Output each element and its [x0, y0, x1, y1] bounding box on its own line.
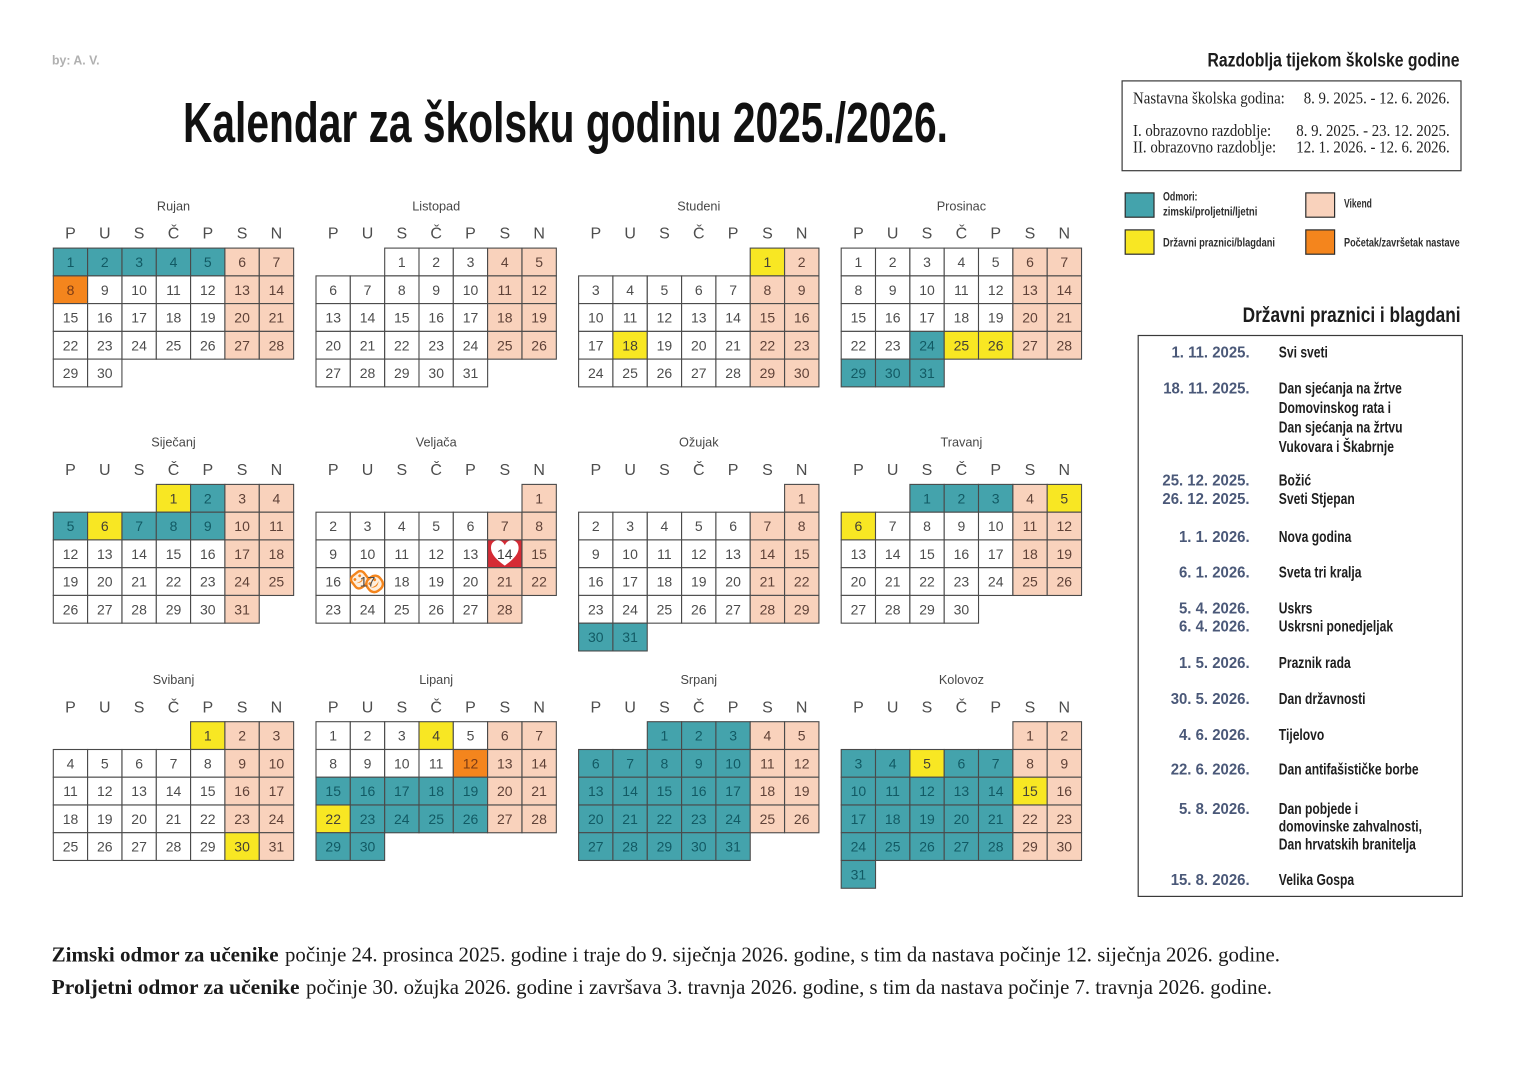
svg-text:15. 8. 2026.: 15. 8. 2026. [1171, 872, 1250, 889]
svg-text:7: 7 [535, 728, 543, 744]
svg-text:2: 2 [204, 490, 212, 506]
svg-text:29: 29 [63, 365, 79, 381]
svg-text:23: 23 [885, 337, 901, 353]
svg-text:Listopad: Listopad [412, 199, 460, 213]
svg-text:1: 1 [855, 254, 863, 270]
svg-text:24: 24 [919, 337, 935, 353]
svg-text:17: 17 [131, 310, 147, 326]
svg-text:27: 27 [954, 839, 970, 855]
svg-text:19: 19 [531, 310, 547, 326]
svg-text:15: 15 [851, 310, 867, 326]
svg-text:22: 22 [200, 811, 216, 827]
svg-text:27: 27 [234, 337, 250, 353]
svg-text:7: 7 [992, 755, 1000, 771]
svg-text:5: 5 [67, 518, 75, 534]
svg-text:4: 4 [501, 254, 509, 270]
svg-text:15: 15 [657, 783, 673, 799]
svg-text:16: 16 [954, 546, 970, 562]
svg-text:9: 9 [889, 282, 897, 298]
svg-text:17: 17 [463, 310, 479, 326]
svg-text:10: 10 [131, 282, 147, 298]
svg-text:Vukovara i Škabrnje: Vukovara i Škabrnje [1279, 437, 1394, 456]
svg-text:21: 21 [760, 574, 776, 590]
svg-text:19: 19 [200, 310, 216, 326]
svg-text:16: 16 [1057, 783, 1073, 799]
svg-text:16: 16 [885, 310, 901, 326]
svg-text:počinje 24. prosinca 2025. god: počinje 24. prosinca 2025. godine i traj… [285, 943, 1280, 967]
svg-text:5. 4. 2026.: 5. 4. 2026. [1179, 600, 1250, 617]
svg-text:13: 13 [131, 783, 147, 799]
svg-text:29: 29 [1022, 839, 1038, 855]
svg-text:26: 26 [463, 811, 479, 827]
svg-text:8: 8 [661, 755, 669, 771]
svg-text:12: 12 [97, 783, 113, 799]
svg-text:22: 22 [851, 337, 867, 353]
svg-text:5: 5 [101, 755, 109, 771]
svg-text:15: 15 [200, 783, 216, 799]
svg-text:31: 31 [234, 601, 250, 617]
svg-text:22: 22 [325, 811, 341, 827]
svg-text:25: 25 [166, 337, 182, 353]
svg-text:Domovinskog rata i: Domovinskog rata i [1279, 400, 1391, 417]
svg-text:Kolovoz: Kolovoz [939, 673, 984, 687]
svg-text:18: 18 [269, 546, 285, 562]
svg-text:23: 23 [200, 574, 216, 590]
svg-text:25: 25 [885, 839, 901, 855]
svg-text:19: 19 [919, 811, 935, 827]
svg-text:7: 7 [501, 518, 509, 534]
svg-text:30: 30 [97, 365, 113, 381]
svg-text:1: 1 [67, 254, 75, 270]
svg-text:Dan sjećanja na žrtvu: Dan sjećanja na žrtvu [1279, 419, 1403, 436]
svg-text:Razdoblja tijekom školske godi: Razdoblja tijekom školske godine [1208, 50, 1460, 71]
svg-text:18: 18 [954, 310, 970, 326]
svg-text:30: 30 [794, 365, 810, 381]
svg-text:1: 1 [329, 728, 337, 744]
svg-text:21: 21 [725, 337, 741, 353]
svg-text:Uskrs: Uskrs [1279, 600, 1313, 617]
svg-text:10: 10 [394, 755, 410, 771]
svg-text:1: 1 [398, 254, 406, 270]
svg-text:30: 30 [691, 839, 707, 855]
svg-text:22: 22 [760, 337, 776, 353]
svg-text:6. 1. 2026.: 6. 1. 2026. [1179, 565, 1250, 582]
svg-text:25: 25 [428, 811, 444, 827]
svg-text:3: 3 [273, 728, 281, 744]
svg-text:Dan pobjede i: Dan pobjede i [1279, 801, 1358, 818]
svg-text:10: 10 [622, 546, 638, 562]
svg-text:27: 27 [325, 365, 341, 381]
svg-text:Svi sveti: Svi sveti [1279, 345, 1328, 362]
svg-text:24: 24 [622, 601, 638, 617]
svg-text:7: 7 [135, 518, 143, 534]
svg-text:Dan antifašističke borbe: Dan antifašističke borbe [1279, 762, 1419, 779]
svg-text:16: 16 [428, 310, 444, 326]
svg-text:8: 8 [923, 518, 931, 534]
svg-text:7: 7 [889, 518, 897, 534]
svg-text:8: 8 [329, 755, 337, 771]
svg-text:21: 21 [166, 811, 182, 827]
svg-text:Dan državnosti: Dan državnosti [1279, 691, 1366, 708]
svg-text:24: 24 [851, 839, 867, 855]
svg-text:4: 4 [67, 755, 75, 771]
svg-text:2: 2 [364, 728, 372, 744]
svg-text:9: 9 [695, 755, 703, 771]
svg-text:30: 30 [234, 839, 250, 855]
svg-text:28: 28 [885, 601, 901, 617]
svg-text:8: 8 [1026, 755, 1034, 771]
svg-text:9: 9 [1060, 755, 1068, 771]
svg-text:22: 22 [919, 574, 935, 590]
svg-text:8: 8 [798, 518, 806, 534]
svg-text:12: 12 [463, 755, 479, 771]
svg-text:26: 26 [657, 365, 673, 381]
svg-text:17: 17 [269, 783, 285, 799]
svg-text:11: 11 [885, 783, 900, 799]
svg-text:6: 6 [855, 518, 863, 534]
svg-text:26: 26 [97, 839, 113, 855]
svg-text:11: 11 [429, 755, 444, 771]
svg-text:30: 30 [200, 601, 216, 617]
svg-text:21: 21 [131, 574, 147, 590]
svg-text:9: 9 [432, 282, 440, 298]
svg-text:18: 18 [166, 310, 182, 326]
svg-text:4: 4 [764, 728, 772, 744]
svg-text:3: 3 [729, 728, 737, 744]
svg-text:31: 31 [622, 629, 638, 645]
svg-text:1. 5. 2026.: 1. 5. 2026. [1179, 655, 1250, 672]
svg-text:20: 20 [97, 574, 113, 590]
svg-text:PUSČPSN: PUSČPSN [590, 697, 807, 716]
svg-text:29: 29 [200, 839, 216, 855]
svg-text:11: 11 [657, 546, 672, 562]
svg-text:20: 20 [725, 574, 741, 590]
svg-text:16: 16 [691, 783, 707, 799]
svg-text:13: 13 [725, 546, 741, 562]
svg-text:28: 28 [760, 601, 776, 617]
svg-text:4: 4 [1026, 490, 1034, 506]
svg-text:PUSČPSN: PUSČPSN [65, 224, 282, 243]
svg-text:24: 24 [131, 337, 147, 353]
svg-text:10: 10 [234, 518, 250, 534]
svg-text:11: 11 [395, 546, 410, 562]
svg-text:17: 17 [988, 546, 1004, 562]
svg-text:15: 15 [166, 546, 182, 562]
svg-text:14: 14 [885, 546, 901, 562]
svg-text:31: 31 [919, 365, 935, 381]
svg-text:13: 13 [851, 546, 867, 562]
svg-text:19: 19 [657, 337, 673, 353]
svg-text:20: 20 [1022, 310, 1038, 326]
svg-text:8: 8 [67, 282, 75, 298]
svg-text:7: 7 [764, 518, 772, 534]
svg-text:20: 20 [691, 337, 707, 353]
svg-text:20: 20 [851, 574, 867, 590]
svg-text:Veljača: Veljača [416, 436, 458, 450]
svg-text:4: 4 [170, 254, 178, 270]
svg-text:5: 5 [661, 282, 669, 298]
svg-text:10: 10 [463, 282, 479, 298]
svg-text:Travanj: Travanj [940, 436, 982, 450]
svg-text:14: 14 [269, 282, 285, 298]
svg-text:20: 20 [234, 310, 250, 326]
svg-text:19: 19 [1057, 546, 1073, 562]
svg-text:14: 14 [988, 783, 1004, 799]
svg-text:21: 21 [497, 574, 513, 590]
svg-text:23: 23 [954, 574, 970, 590]
svg-text:3: 3 [364, 518, 372, 534]
svg-text:30: 30 [428, 365, 444, 381]
svg-text:28: 28 [269, 337, 285, 353]
svg-text:11: 11 [954, 282, 969, 298]
svg-text:3: 3 [135, 254, 143, 270]
svg-text:2: 2 [238, 728, 246, 744]
svg-text:5. 8. 2026.: 5. 8. 2026. [1179, 801, 1250, 818]
svg-text:17: 17 [234, 546, 250, 562]
svg-text:20: 20 [588, 811, 604, 827]
svg-text:14: 14 [760, 546, 776, 562]
svg-text:15: 15 [531, 546, 547, 562]
svg-text:28: 28 [531, 811, 547, 827]
svg-text:Božić: Božić [1279, 473, 1311, 490]
svg-text:11: 11 [760, 755, 775, 771]
svg-text:Sveta tri kralja: Sveta tri kralja [1279, 565, 1362, 582]
svg-text:13: 13 [325, 310, 341, 326]
svg-text:Prosinac: Prosinac [937, 199, 987, 213]
svg-text:23: 23 [325, 601, 341, 617]
svg-text:Ožujak: Ožujak [679, 436, 719, 450]
svg-text:9: 9 [204, 518, 212, 534]
svg-text:Nova godina: Nova godina [1279, 529, 1352, 546]
svg-text:18: 18 [760, 783, 776, 799]
svg-text:29: 29 [760, 365, 776, 381]
svg-text:5: 5 [432, 518, 440, 534]
svg-text:27: 27 [131, 839, 147, 855]
svg-text:28: 28 [725, 365, 741, 381]
svg-text:7: 7 [170, 755, 178, 771]
svg-text:7: 7 [273, 254, 281, 270]
svg-text:14: 14 [622, 783, 638, 799]
svg-text:24: 24 [988, 574, 1004, 590]
svg-text:2: 2 [695, 728, 703, 744]
svg-text:5: 5 [798, 728, 806, 744]
svg-text:4. 6. 2026.: 4. 6. 2026. [1179, 727, 1250, 744]
svg-text:12: 12 [794, 755, 810, 771]
svg-text:Kalendar za školsku godinu 202: Kalendar za školsku godinu 2025./2026. [183, 91, 948, 155]
svg-text:2: 2 [1060, 728, 1068, 744]
svg-text:10: 10 [269, 755, 285, 771]
svg-text:13: 13 [463, 546, 479, 562]
svg-text:15: 15 [1022, 783, 1038, 799]
svg-text:28: 28 [497, 601, 513, 617]
svg-text:15: 15 [325, 783, 341, 799]
svg-text:21: 21 [1057, 310, 1073, 326]
svg-text:23: 23 [588, 601, 604, 617]
svg-text:počinje 30. ožujka 2026. godin: počinje 30. ožujka 2026. godine i završa… [306, 975, 1272, 999]
svg-text:PUSČPSN: PUSČPSN [853, 224, 1070, 243]
svg-text:17: 17 [851, 811, 867, 827]
svg-text:Lipanj: Lipanj [419, 673, 453, 687]
svg-text:14: 14 [725, 310, 741, 326]
svg-text:3: 3 [626, 518, 634, 534]
svg-text:9: 9 [329, 546, 337, 562]
svg-text:20: 20 [131, 811, 147, 827]
svg-text:PUSČPSN: PUSČPSN [328, 224, 545, 243]
svg-text:domovinske zahvalnosti,: domovinske zahvalnosti, [1279, 819, 1422, 836]
svg-text:17: 17 [394, 783, 410, 799]
svg-text:13: 13 [1022, 282, 1038, 298]
svg-text:18: 18 [63, 811, 79, 827]
svg-text:1: 1 [535, 490, 543, 506]
svg-text:25: 25 [269, 574, 285, 590]
svg-text:Nastavna školska godina:: Nastavna školska godina: [1133, 88, 1285, 107]
svg-text:25. 12. 2025.: 25. 12. 2025. [1162, 473, 1249, 490]
svg-text:30. 5. 2026.: 30. 5. 2026. [1171, 691, 1250, 708]
svg-text:20: 20 [325, 337, 341, 353]
svg-text:18: 18 [1022, 546, 1038, 562]
svg-text:13: 13 [97, 546, 113, 562]
svg-text:20: 20 [497, 783, 513, 799]
svg-text:22: 22 [1022, 811, 1038, 827]
svg-text:11: 11 [623, 310, 638, 326]
svg-text:1: 1 [923, 490, 931, 506]
svg-text:8. 9. 2025. - 12. 6. 2026.: 8. 9. 2025. - 12. 6. 2026. [1304, 88, 1450, 107]
svg-text:3: 3 [398, 728, 406, 744]
svg-text:25: 25 [760, 811, 776, 827]
svg-text:5: 5 [467, 728, 475, 744]
svg-text:30: 30 [954, 601, 970, 617]
svg-text:29: 29 [794, 601, 810, 617]
svg-text:4: 4 [661, 518, 669, 534]
svg-text:10: 10 [988, 518, 1004, 534]
svg-text:2: 2 [958, 490, 966, 506]
svg-text:13: 13 [497, 755, 513, 771]
svg-text:9: 9 [958, 518, 966, 534]
svg-text:29: 29 [394, 365, 410, 381]
svg-text:12: 12 [691, 546, 707, 562]
svg-text:8: 8 [535, 518, 543, 534]
svg-text:5: 5 [535, 254, 543, 270]
svg-text:Vikend: Vikend [1344, 197, 1372, 211]
svg-text:Rujan: Rujan [157, 199, 190, 213]
svg-text:26: 26 [428, 601, 444, 617]
svg-text:21: 21 [622, 811, 638, 827]
svg-text:6: 6 [467, 518, 475, 534]
svg-text:18: 18 [497, 310, 513, 326]
svg-text:12. 1. 2026. - 12. 6. 2026.: 12. 1. 2026. - 12. 6. 2026. [1296, 137, 1449, 156]
svg-text:2: 2 [329, 518, 337, 534]
svg-text:16: 16 [588, 574, 604, 590]
svg-text:28: 28 [622, 839, 638, 855]
svg-text:PUSČPSN: PUSČPSN [590, 224, 807, 243]
svg-text:1: 1 [798, 490, 806, 506]
svg-text:27: 27 [588, 839, 604, 855]
svg-text:31: 31 [725, 839, 741, 855]
svg-text:4: 4 [273, 490, 281, 506]
svg-text:6: 6 [1026, 254, 1034, 270]
svg-text:13: 13 [588, 783, 604, 799]
svg-text:21: 21 [988, 811, 1004, 827]
svg-text:26: 26 [63, 601, 79, 617]
svg-text:26: 26 [200, 337, 216, 353]
svg-text:23: 23 [360, 811, 376, 827]
svg-text:Zimski odmor za učenike: Zimski odmor za učenike [52, 943, 279, 967]
svg-text:24: 24 [234, 574, 250, 590]
svg-text:18: 18 [657, 574, 673, 590]
svg-text:Siječanj: Siječanj [151, 436, 195, 450]
svg-text:14: 14 [1057, 282, 1073, 298]
svg-text:Svibanj: Svibanj [153, 673, 195, 687]
svg-text:9: 9 [364, 755, 372, 771]
svg-text:Odmori:: Odmori: [1163, 189, 1198, 203]
svg-text:26: 26 [531, 337, 547, 353]
svg-text:25: 25 [1022, 574, 1038, 590]
svg-text:PUSČPSN: PUSČPSN [328, 697, 545, 716]
svg-text:2: 2 [889, 254, 897, 270]
svg-text:11: 11 [63, 783, 78, 799]
svg-text:by: A. V.: by: A. V. [52, 53, 100, 68]
svg-text:1. 11. 2025.: 1. 11. 2025. [1172, 345, 1250, 362]
svg-text:1. 1. 2026.: 1. 1. 2026. [1179, 529, 1250, 546]
svg-text:17: 17 [588, 337, 604, 353]
svg-text:16: 16 [794, 310, 810, 326]
svg-text:16: 16 [234, 783, 250, 799]
svg-text:28: 28 [1057, 337, 1073, 353]
svg-text:Srpanj: Srpanj [680, 673, 717, 687]
svg-text:25: 25 [394, 601, 410, 617]
svg-text:8: 8 [855, 282, 863, 298]
svg-text:3: 3 [923, 254, 931, 270]
svg-text:27: 27 [463, 601, 479, 617]
svg-text:18: 18 [622, 337, 638, 353]
svg-text:22: 22 [531, 574, 547, 590]
svg-text:27: 27 [1022, 337, 1038, 353]
svg-text:30: 30 [1057, 839, 1073, 855]
svg-text:10: 10 [725, 755, 741, 771]
svg-text:24: 24 [588, 365, 604, 381]
svg-text:8: 8 [398, 282, 406, 298]
svg-text:30: 30 [588, 629, 604, 645]
svg-text:16: 16 [200, 546, 216, 562]
svg-text:23: 23 [691, 811, 707, 827]
svg-text:4: 4 [398, 518, 406, 534]
svg-text:13: 13 [234, 282, 250, 298]
svg-text:12: 12 [657, 310, 673, 326]
svg-text:24: 24 [463, 337, 479, 353]
svg-text:Sveti Stjepan: Sveti Stjepan [1279, 491, 1355, 508]
svg-text:3: 3 [467, 254, 475, 270]
svg-text:29: 29 [657, 839, 673, 855]
svg-text:6: 6 [329, 282, 337, 298]
svg-text:4: 4 [958, 254, 966, 270]
svg-text:27: 27 [725, 601, 741, 617]
svg-text:28: 28 [166, 839, 182, 855]
svg-text:21: 21 [531, 783, 547, 799]
svg-text:19: 19 [794, 783, 810, 799]
svg-text:2: 2 [798, 254, 806, 270]
svg-text:14: 14 [531, 755, 547, 771]
svg-text:20: 20 [463, 574, 479, 590]
svg-text:6: 6 [501, 728, 509, 744]
svg-text:2: 2 [101, 254, 109, 270]
svg-text:24: 24 [269, 811, 285, 827]
svg-text:2: 2 [592, 518, 600, 534]
svg-text:Državni praznici/blagdani: Državni praznici/blagdani [1163, 236, 1275, 250]
svg-text:22: 22 [794, 574, 810, 590]
svg-text:6: 6 [592, 755, 600, 771]
svg-text:16: 16 [97, 310, 113, 326]
svg-text:27: 27 [497, 811, 513, 827]
